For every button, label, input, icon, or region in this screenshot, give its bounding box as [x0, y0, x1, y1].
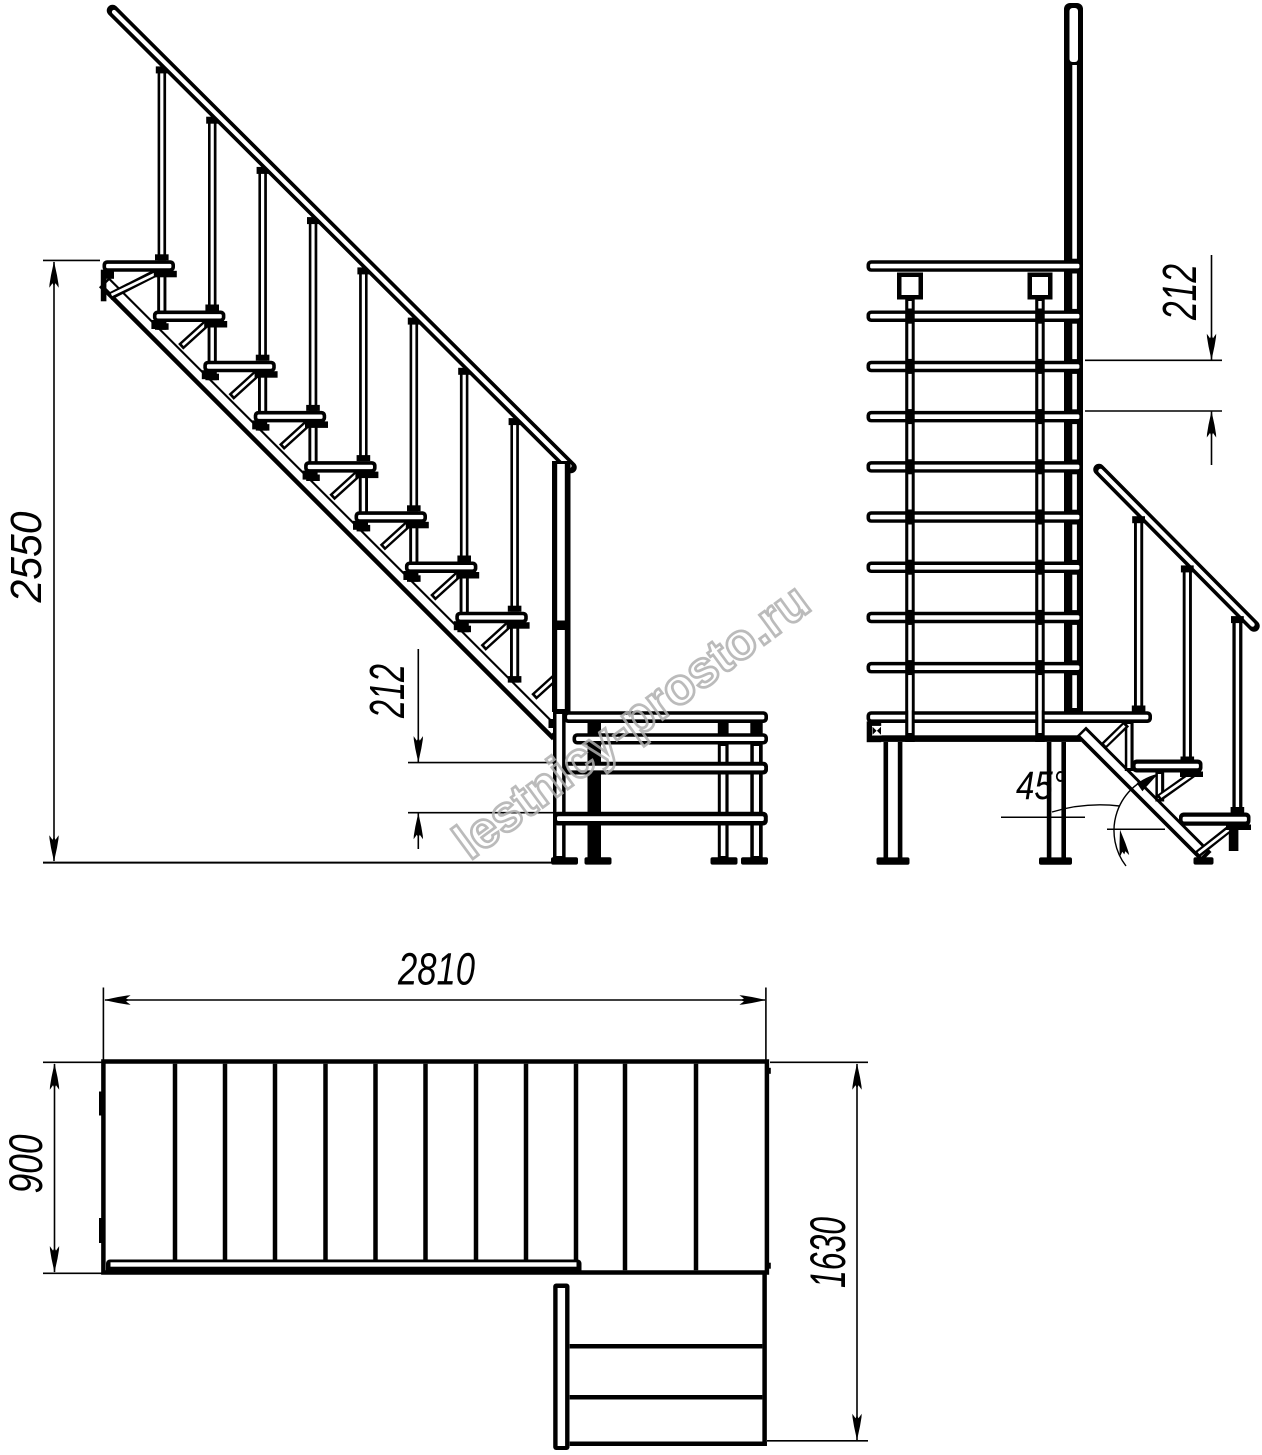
svg-text:2810: 2810: [397, 944, 475, 995]
svg-text:900: 900: [0, 1135, 52, 1194]
svg-text:1630: 1630: [800, 1217, 856, 1288]
svg-text:45°: 45°: [1016, 764, 1066, 808]
svg-text:212: 212: [1154, 264, 1207, 321]
svg-text:2550: 2550: [2, 511, 51, 603]
svg-text:212: 212: [361, 664, 415, 719]
